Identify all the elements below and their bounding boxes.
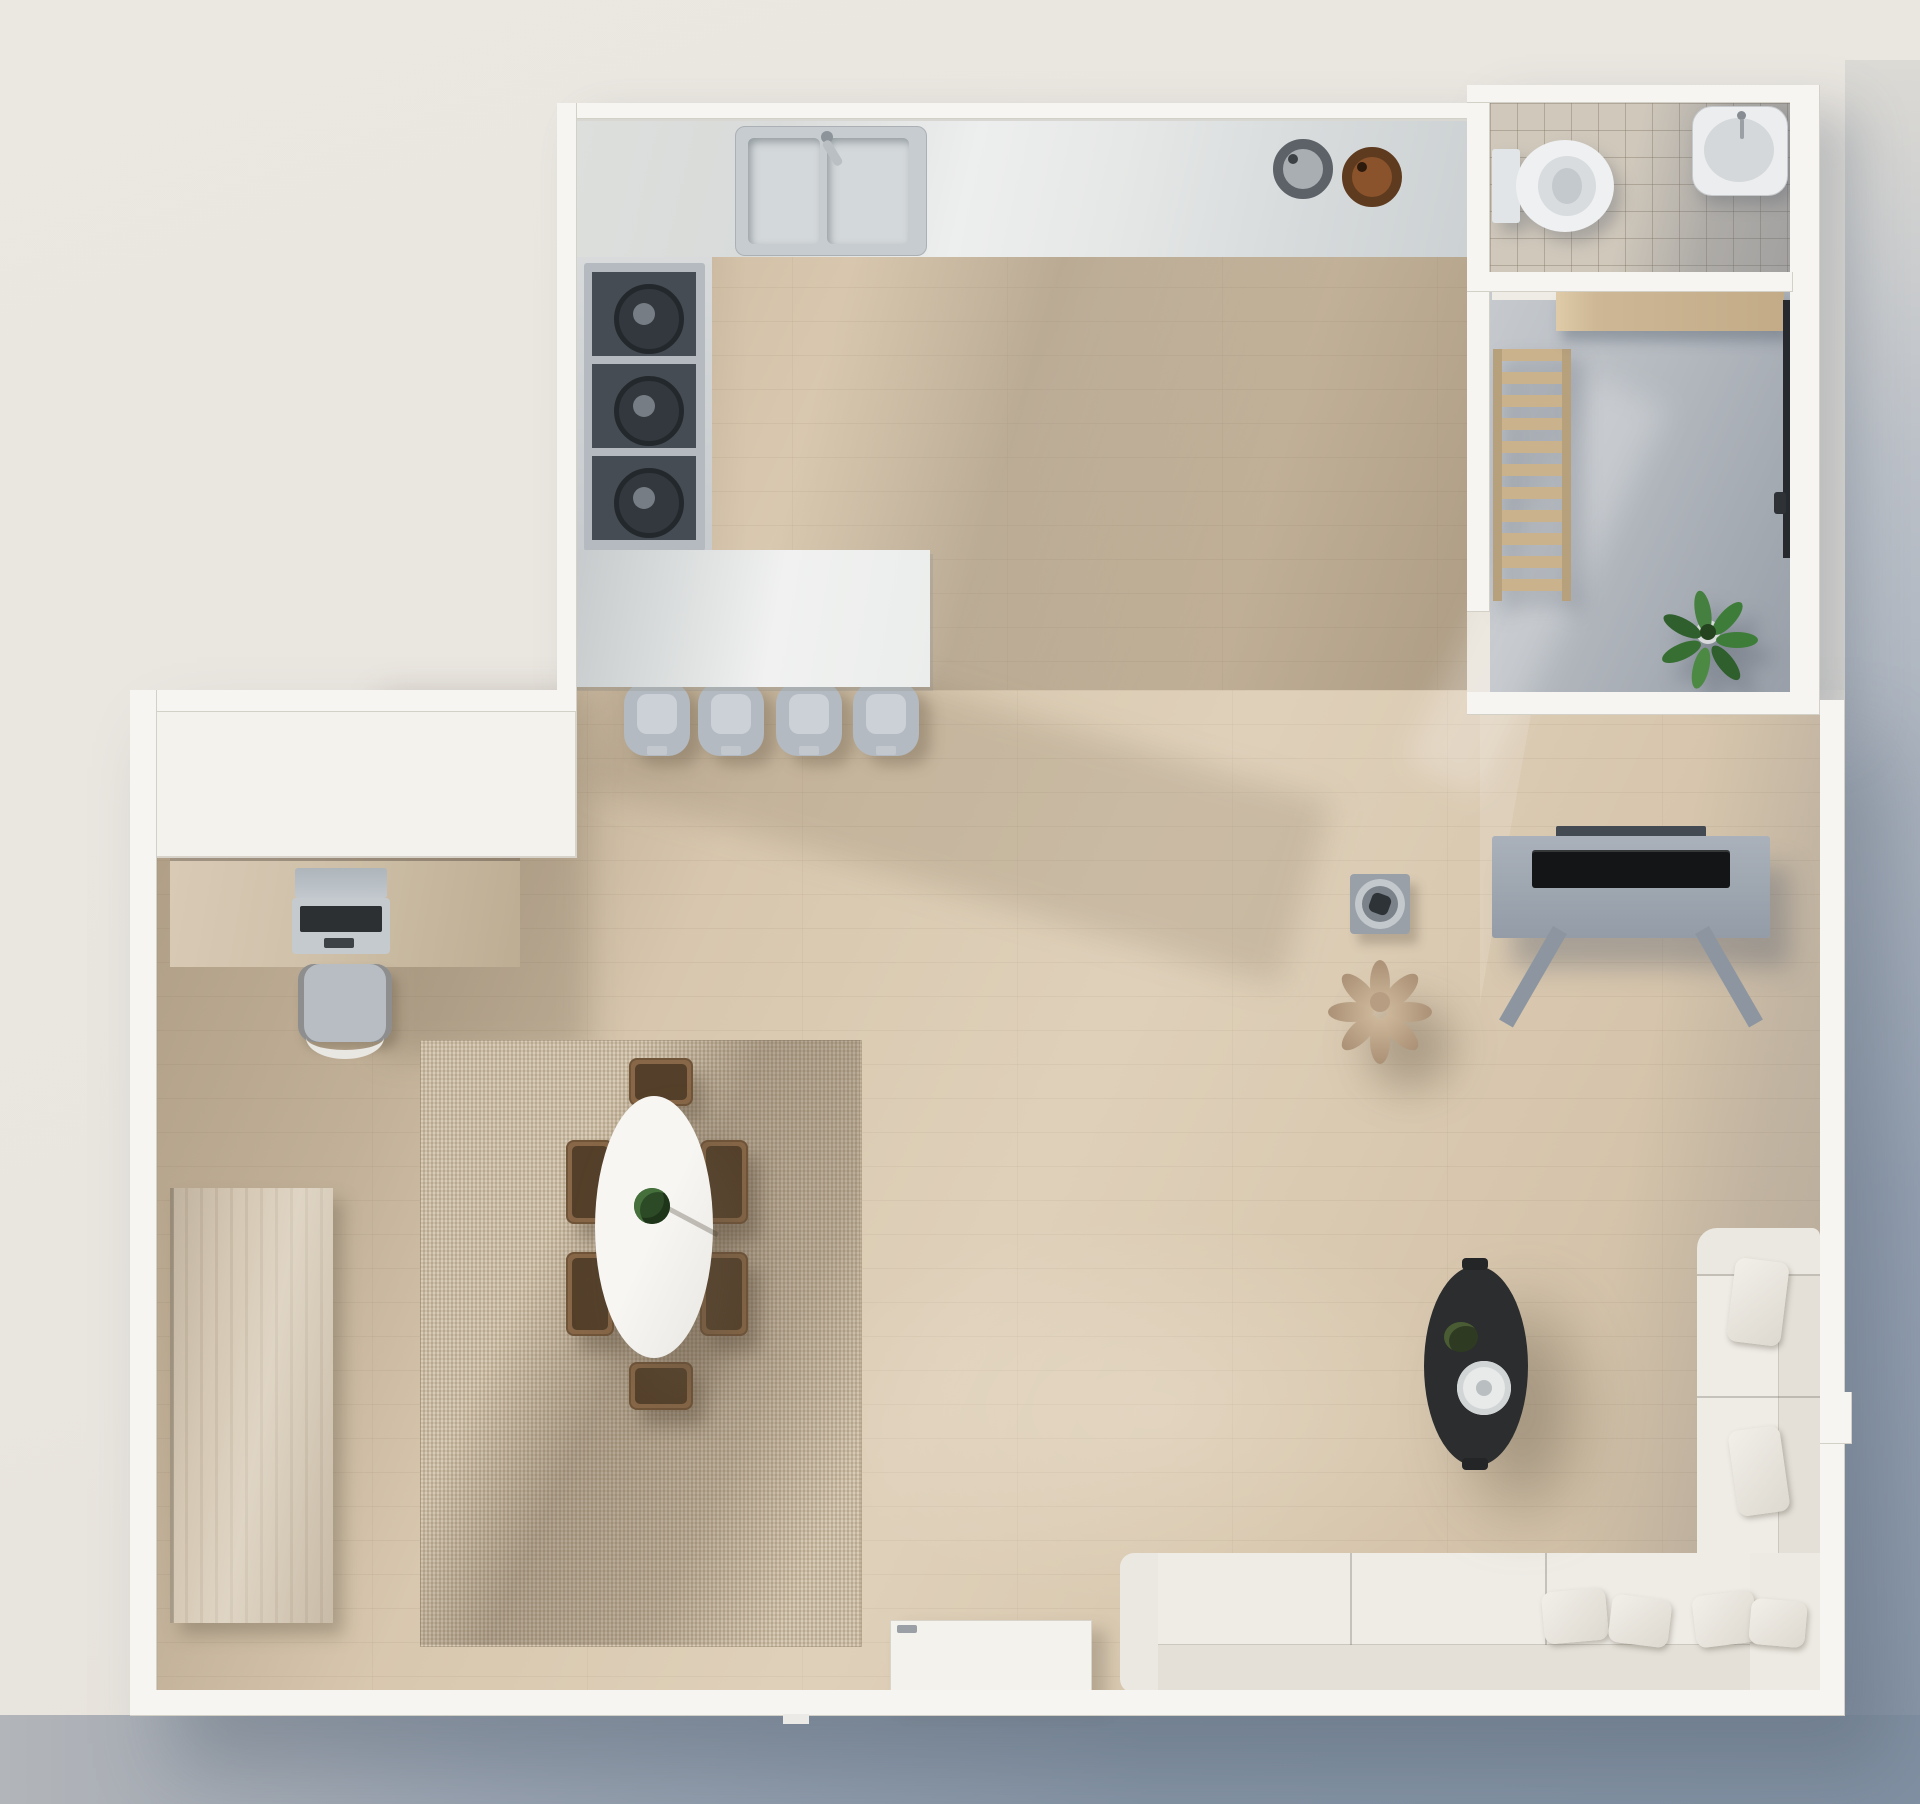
tray-cup [1476, 1380, 1492, 1396]
coffee-table-handle [1462, 1458, 1488, 1470]
sink-basin-right [827, 138, 909, 244]
burner-1 [592, 272, 696, 356]
sofa-pillow [1748, 1598, 1808, 1649]
wall-bath-top [1467, 85, 1820, 103]
counter-trivet-copper [1342, 147, 1402, 207]
burner-3 [592, 456, 696, 540]
wall-bath-left [1467, 103, 1490, 612]
bathroom-sink [1692, 106, 1788, 196]
kitchen-island [557, 550, 930, 687]
counter-trivet-copper-center [1357, 162, 1367, 172]
wall-bath-divider [1467, 272, 1793, 292]
wall-shelf [1556, 291, 1784, 331]
tv [1532, 850, 1730, 888]
sofa-back-vertical [1779, 1276, 1820, 1560]
balcony-threshold [1467, 612, 1490, 692]
laptop-screen [295, 868, 387, 898]
bar-stool [624, 682, 690, 756]
kitchen-counter [577, 117, 1467, 257]
sofa-arm-left [1120, 1553, 1158, 1693]
wall-kitchen-top [557, 103, 1490, 121]
balcony-door-track [1783, 300, 1790, 558]
floor-plan-render [0, 0, 1920, 1804]
wall-bath-right [1790, 85, 1820, 715]
dining-chair [629, 1362, 693, 1410]
laptop-touchpad [324, 938, 354, 948]
ladder-shelf [1493, 349, 1571, 601]
balcony-door-handle [1774, 492, 1786, 514]
office-builtin-cabinet [157, 712, 577, 858]
bar-stool [776, 682, 842, 756]
console-leg-right [1695, 926, 1763, 1028]
counter-trivet-gray-center [1288, 154, 1298, 164]
cooktop [584, 263, 705, 551]
bar-stool [698, 682, 764, 756]
table-centerpiece-plant [634, 1188, 670, 1224]
balcony-plant [1662, 586, 1754, 678]
coffee-table-handle [1462, 1258, 1488, 1270]
console-leg-left [1499, 926, 1567, 1028]
coffee-table-plant [1444, 1322, 1478, 1352]
serving-tray [1457, 1361, 1511, 1415]
flower-pouf [1328, 950, 1432, 1054]
sink-basin-left [748, 138, 820, 244]
credenza [890, 1620, 1092, 1700]
laptop [292, 868, 390, 954]
sofa-pillow [1541, 1587, 1609, 1644]
wall-living-bottom [130, 1690, 1845, 1716]
credenza-handle [897, 1625, 917, 1633]
bathroom-sink-basin [1704, 118, 1774, 182]
wall-right-tab [1820, 1392, 1852, 1444]
bathroom-sink-faucet-spout [1740, 119, 1744, 139]
toilet-seat-inner [1552, 168, 1582, 204]
wall-living-left [130, 690, 157, 1715]
toilet [1492, 138, 1616, 234]
wall-bottom-tab [783, 1714, 809, 1724]
dining-table [595, 1096, 713, 1358]
laptop-keyboard [300, 906, 382, 932]
bar-stool [853, 682, 919, 756]
media-console [1492, 826, 1770, 1046]
kitchen-sink [735, 126, 927, 256]
counter-trivet-gray [1273, 139, 1333, 199]
backdrop-shadow-right [1845, 60, 1920, 1804]
backdrop-shadow-bottom [0, 1715, 1920, 1804]
sofa-pillow [1726, 1257, 1790, 1347]
burner-2 [592, 364, 696, 448]
office-chair [298, 964, 392, 1052]
wall-living-topleft [130, 690, 577, 712]
sofa-pillow [1691, 1589, 1759, 1648]
plant-center [1700, 624, 1716, 640]
wall-kitchen-left [557, 103, 577, 703]
office-chair-base [306, 1016, 384, 1059]
wardrobe-cabinet [170, 1188, 333, 1623]
sofa-pillow [1607, 1594, 1672, 1649]
wall-balcony-bottom [1467, 692, 1820, 715]
pouf-center [1370, 992, 1390, 1012]
sofa-back-horizontal [1158, 1645, 1750, 1693]
wall-living-right [1820, 700, 1845, 1716]
decor-bowl [1350, 874, 1410, 934]
